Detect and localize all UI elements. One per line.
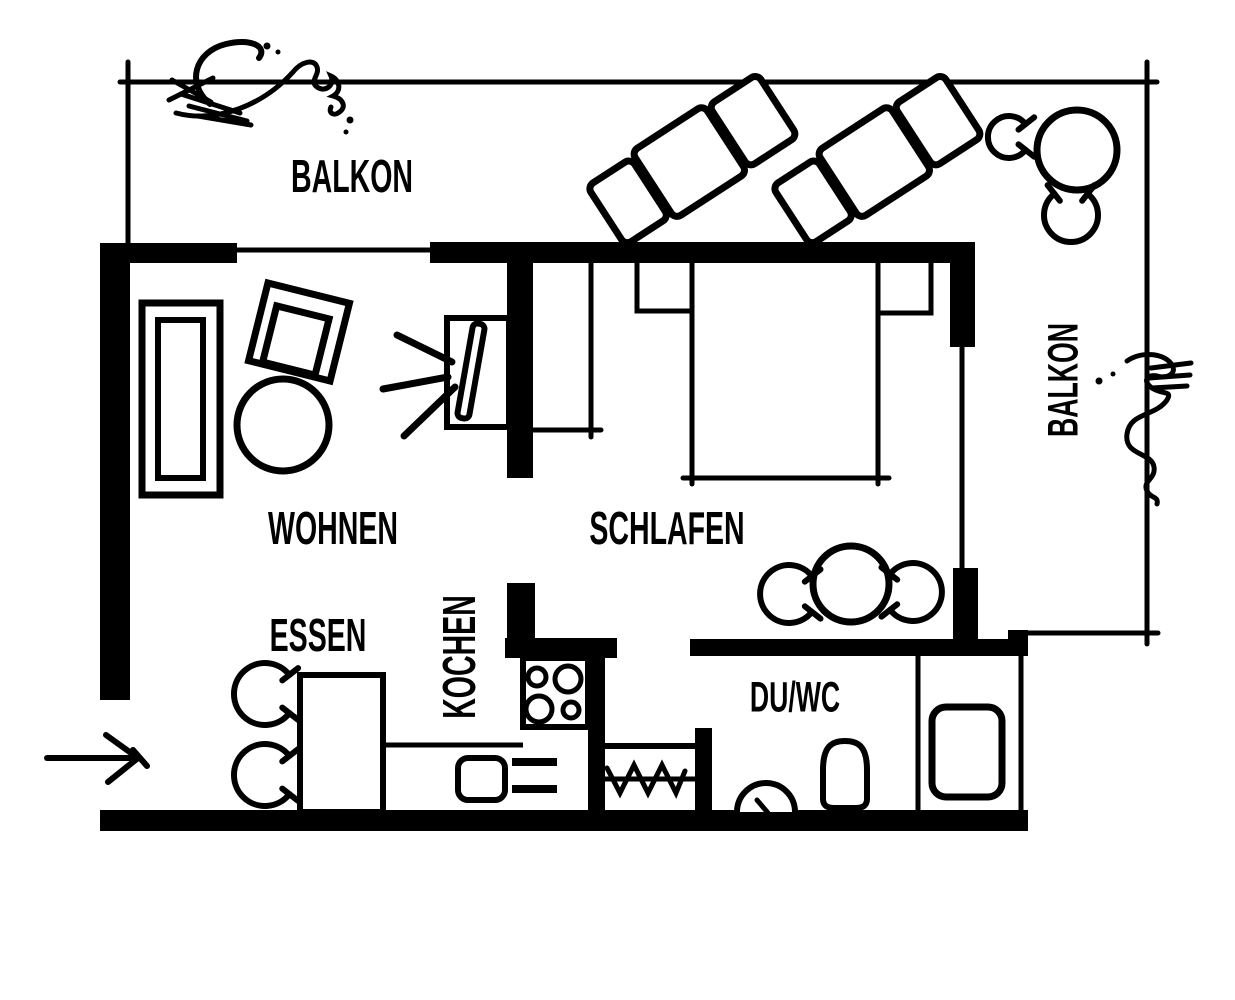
wall-segment xyxy=(100,243,237,263)
wall-segment xyxy=(950,242,975,347)
balcony-table xyxy=(1037,110,1117,190)
room-label-bathroom: DU/WC xyxy=(750,677,840,720)
chair-arc xyxy=(988,116,1034,158)
wall-segment xyxy=(100,810,1028,831)
walls xyxy=(100,242,1028,831)
plant-scribble-top xyxy=(169,42,354,135)
sofa xyxy=(142,303,220,495)
wall-segment xyxy=(695,728,712,812)
dining-table xyxy=(300,675,383,812)
room-label-kitchen: KOCHEN xyxy=(436,595,482,719)
double-bed xyxy=(683,262,889,484)
toilet xyxy=(823,741,867,808)
wardrobe xyxy=(533,262,601,437)
chair-arc xyxy=(234,663,298,725)
nightstand-left xyxy=(637,262,692,311)
closet-hangers xyxy=(602,746,698,793)
entrance-arrow xyxy=(47,735,147,782)
wall-segment xyxy=(100,243,130,700)
kitchen-drawers xyxy=(512,758,557,793)
room-label-living: WOHNEN xyxy=(268,505,398,551)
chair-arc xyxy=(234,744,298,806)
coffee-table xyxy=(237,379,329,471)
stove xyxy=(523,658,588,727)
shower-tray xyxy=(932,707,1002,797)
room-label-sleeping: SCHLAFEN xyxy=(589,505,744,551)
sun-lounger xyxy=(770,71,985,249)
nightstand-right xyxy=(878,262,931,313)
wall-segment xyxy=(953,568,978,643)
round-table-bedroom xyxy=(813,546,889,622)
washbasin xyxy=(737,783,795,813)
floor-plan: BALKON WOHNEN SCHLAFEN ESSEN KOCHEN DU/W… xyxy=(0,0,1235,1000)
room-label-balcony-top: BALKON xyxy=(291,153,413,199)
room-label-dining: ESSEN xyxy=(270,612,367,658)
sun-lounger xyxy=(585,71,800,249)
plant-scribble-right xyxy=(1096,354,1192,504)
wall-segment xyxy=(1008,630,1028,656)
kitchen-sink xyxy=(458,758,505,800)
floor-plan-drawing xyxy=(0,0,1235,1000)
chair-arc xyxy=(1044,185,1098,242)
armchair xyxy=(249,283,350,381)
tv-cabinet xyxy=(383,318,509,436)
room-label-balcony-right: BALKON xyxy=(1043,323,1086,437)
